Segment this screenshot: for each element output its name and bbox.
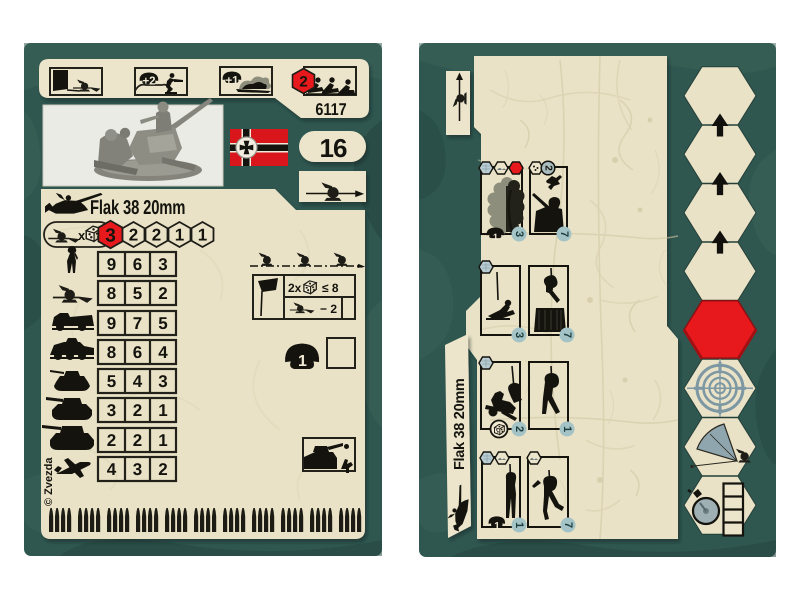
svg-text:1: 1 — [494, 521, 500, 532]
svg-text:7: 7 — [133, 314, 142, 333]
svg-text:2: 2 — [133, 401, 142, 420]
svg-text:1: 1 — [158, 401, 167, 420]
svg-text:8: 8 — [107, 343, 116, 362]
svg-text:x: x — [78, 228, 86, 243]
svg-text:3: 3 — [513, 231, 525, 237]
svg-text:3: 3 — [513, 332, 525, 338]
svg-text:© Zvezda: © Zvezda — [43, 457, 55, 506]
svg-text:3: 3 — [133, 460, 142, 479]
svg-text:9: 9 — [107, 255, 116, 274]
svg-text:5: 5 — [107, 372, 116, 391]
svg-text:7: 7 — [558, 231, 570, 237]
svg-text:3: 3 — [158, 372, 167, 391]
svg-text:2: 2 — [133, 431, 142, 450]
svg-text:6: 6 — [133, 255, 142, 274]
svg-text:4: 4 — [107, 460, 117, 479]
svg-text:1: 1 — [513, 522, 525, 528]
svg-text:2: 2 — [543, 165, 554, 171]
svg-text:7: 7 — [562, 522, 574, 528]
svg-text:2: 2 — [513, 426, 525, 432]
svg-text:4: 4 — [158, 343, 168, 362]
svg-text:3: 3 — [107, 401, 116, 420]
svg-text:4: 4 — [133, 372, 143, 391]
svg-text:+1: +1 — [225, 75, 239, 87]
svg-text:2x: 2x — [288, 281, 302, 295]
svg-text:5: 5 — [133, 284, 142, 303]
svg-text:+2: +2 — [142, 75, 155, 87]
svg-text:Flak 38 20mm: Flak 38 20mm — [90, 197, 185, 219]
svg-text:2: 2 — [299, 74, 307, 91]
svg-text:6: 6 — [133, 343, 142, 362]
svg-text:≤ 8: ≤ 8 — [322, 281, 339, 295]
svg-text:1: 1 — [298, 353, 307, 370]
svg-text:1: 1 — [561, 426, 573, 432]
svg-text:1: 1 — [198, 226, 207, 245]
svg-text:5: 5 — [158, 314, 167, 333]
svg-text:3: 3 — [105, 226, 116, 247]
svg-text:2: 2 — [107, 431, 116, 450]
svg-text:2: 2 — [129, 226, 138, 245]
svg-text:7: 7 — [561, 332, 573, 338]
svg-text:6117: 6117 — [315, 100, 346, 119]
svg-text:3: 3 — [158, 255, 167, 274]
svg-text:1: 1 — [158, 431, 167, 450]
svg-text:− 2: − 2 — [320, 302, 337, 316]
svg-text:16: 16 — [320, 133, 347, 163]
svg-text:1: 1 — [493, 232, 498, 242]
svg-text:Flak 38 20mm: Flak 38 20mm — [452, 378, 468, 470]
svg-text:9: 9 — [107, 314, 116, 333]
svg-text:8: 8 — [107, 284, 116, 303]
svg-text:2: 2 — [158, 284, 167, 303]
svg-text:2: 2 — [152, 226, 161, 245]
svg-text:1: 1 — [175, 226, 184, 245]
svg-text:2: 2 — [158, 460, 167, 479]
